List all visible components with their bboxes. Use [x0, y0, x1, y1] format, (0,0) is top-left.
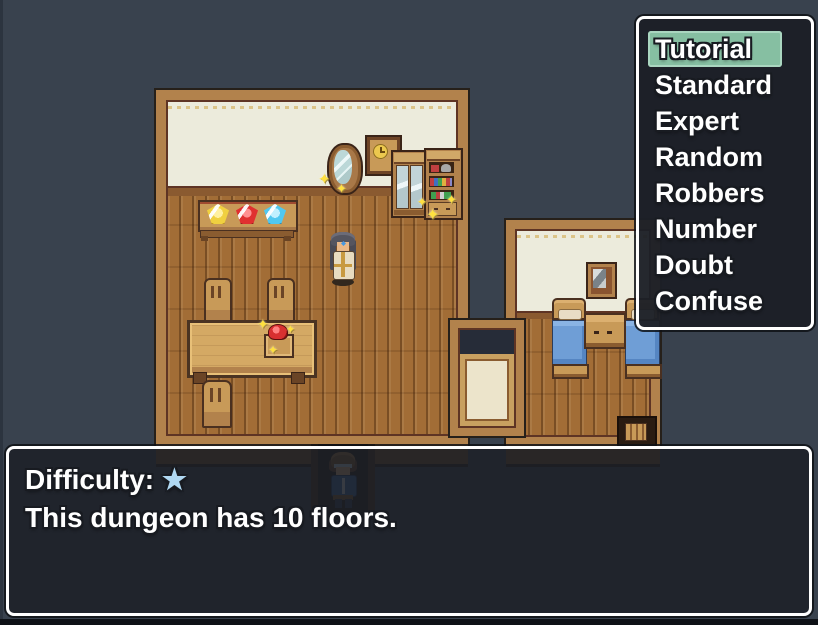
menu-item-robbers[interactable]: Robbers [648, 175, 782, 211]
npc-robe [333, 251, 355, 280]
sparkle-icon: ✦ [446, 193, 457, 206]
sparkle-icon: ✦ [318, 172, 331, 187]
difficulty-star-icon: ★ [162, 464, 187, 495]
sparkle-icon: ✦ [268, 344, 278, 356]
clock-face [373, 144, 388, 159]
game-viewport: ✦ ✦ ✦ ✦ ✦ [0, 0, 818, 625]
passage-alcove [450, 320, 524, 436]
screen-bottom-bar [0, 619, 818, 625]
books [430, 178, 452, 186]
mirror-glass [334, 150, 352, 184]
menu-item-expert[interactable]: Expert [648, 103, 782, 139]
menu-item-standard[interactable]: Standard [648, 67, 782, 103]
menu-item-confuse[interactable]: Confuse [648, 283, 782, 319]
nightstand [584, 313, 626, 349]
blanket [552, 320, 587, 366]
message-window[interactable]: Difficulty: ★ This dungeon has 10 floors… [6, 446, 812, 616]
picture-frame [586, 262, 617, 299]
red-treasure [268, 324, 288, 340]
chair [204, 278, 232, 326]
sparkle-icon: ✦ [286, 325, 295, 336]
sparkle-icon: ✦ [336, 182, 347, 195]
message-line-body: This dungeon has 10 floors. [25, 499, 809, 537]
sparkle-icon: ✦ [426, 208, 439, 224]
menu-item-tutorial[interactable]: Tutorial [648, 31, 782, 67]
message-line-difficulty: Difficulty: ★ [25, 461, 809, 499]
bed [552, 298, 586, 376]
menu-item-random[interactable]: Random [648, 139, 782, 175]
passage-mat [460, 354, 514, 426]
chair [267, 278, 295, 326]
firewood-box [617, 416, 657, 448]
chair [202, 380, 232, 428]
gem-counter [198, 200, 298, 240]
difficulty-label: Difficulty: [25, 464, 154, 495]
choice-menu-window: Tutorial Standard Expert Random Robbers … [636, 16, 814, 330]
wardrobe-door [396, 165, 409, 209]
menu-item-doubt[interactable]: Doubt [648, 247, 782, 283]
menu-item-number[interactable]: Number [648, 211, 782, 247]
pillow [558, 309, 582, 320]
sparkle-icon: ✦ [257, 317, 269, 331]
npc-sprite [329, 232, 357, 286]
screen-edge [0, 0, 3, 625]
